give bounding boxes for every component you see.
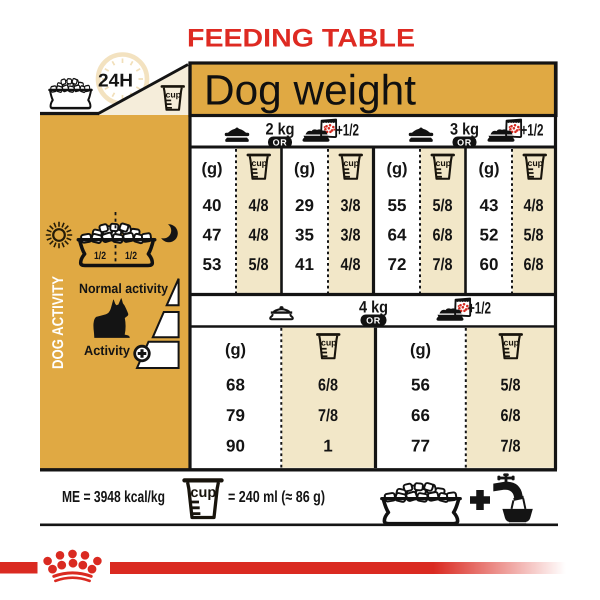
svg-text:+1/2: +1/2: [336, 122, 359, 140]
svg-text:7/8: 7/8: [501, 437, 521, 456]
svg-text:Normal activity: Normal activity: [79, 281, 168, 296]
svg-text:Activity: Activity: [84, 343, 130, 358]
svg-text:52: 52: [480, 226, 499, 245]
svg-text:5/8: 5/8: [249, 255, 269, 274]
svg-text:29: 29: [295, 196, 314, 215]
svg-text:1/2: 1/2: [125, 250, 137, 262]
svg-text:56: 56: [411, 376, 430, 395]
svg-text:5/8: 5/8: [524, 226, 544, 245]
svg-text:(g): (g): [410, 341, 431, 359]
svg-text:FEEDING TABLE: FEEDING TABLE: [187, 25, 415, 53]
svg-text:40: 40: [203, 196, 222, 215]
svg-text:OR: OR: [457, 138, 472, 148]
svg-text:6/8: 6/8: [501, 406, 521, 425]
svg-text:6/8: 6/8: [318, 376, 338, 395]
svg-text:2 kg: 2 kg: [266, 121, 295, 139]
svg-text:OR: OR: [273, 138, 288, 148]
svg-text:ME = 3948 kcal/kg: ME = 3948 kcal/kg: [62, 489, 165, 506]
svg-text:DOG ACTIVITY: DOG ACTIVITY: [50, 275, 67, 369]
svg-text:(g): (g): [478, 160, 499, 178]
svg-text:60: 60: [480, 255, 499, 274]
svg-text:4/8: 4/8: [249, 226, 269, 245]
svg-text:55: 55: [388, 196, 407, 215]
svg-text:= 240 ml (≈ 86 g): = 240 ml (≈ 86 g): [228, 489, 325, 506]
svg-text:7/8: 7/8: [318, 406, 338, 425]
svg-text:5/8: 5/8: [433, 196, 453, 215]
svg-text:1: 1: [323, 437, 332, 456]
svg-text:3 kg: 3 kg: [450, 121, 479, 139]
svg-text:(g): (g): [294, 160, 315, 178]
svg-text:7/8: 7/8: [433, 255, 453, 274]
svg-text:+1/2: +1/2: [521, 122, 544, 140]
svg-text:4/8: 4/8: [341, 255, 361, 274]
svg-text:68: 68: [226, 376, 245, 395]
svg-text:79: 79: [226, 406, 245, 425]
svg-text:1/2: 1/2: [94, 250, 106, 262]
svg-text:47: 47: [203, 226, 222, 245]
svg-text:35: 35: [295, 226, 314, 245]
svg-text:24H: 24H: [98, 70, 133, 91]
svg-text:72: 72: [388, 255, 407, 274]
svg-text:(g): (g): [225, 341, 246, 359]
svg-text:4/8: 4/8: [249, 196, 269, 215]
svg-text:+1/2: +1/2: [468, 300, 491, 318]
svg-text:3/8: 3/8: [341, 196, 361, 215]
svg-text:90: 90: [226, 437, 245, 456]
svg-text:6/8: 6/8: [433, 226, 453, 245]
svg-text:41: 41: [295, 255, 314, 274]
svg-text:5/8: 5/8: [501, 376, 521, 395]
svg-text:4/8: 4/8: [524, 196, 544, 215]
svg-text:cup: cup: [190, 485, 216, 501]
svg-text:64: 64: [388, 226, 407, 245]
svg-text:(g): (g): [386, 160, 407, 178]
svg-text:OR: OR: [366, 316, 381, 326]
svg-text:6/8: 6/8: [524, 255, 544, 274]
svg-text:Dog weight: Dog weight: [204, 68, 416, 115]
svg-text:(g): (g): [201, 160, 222, 178]
svg-text:43: 43: [480, 196, 499, 215]
svg-text:77: 77: [411, 437, 430, 456]
svg-text:66: 66: [411, 406, 430, 425]
svg-text:53: 53: [203, 255, 222, 274]
svg-text:4 kg: 4 kg: [359, 299, 388, 317]
svg-text:3/8: 3/8: [341, 226, 361, 245]
